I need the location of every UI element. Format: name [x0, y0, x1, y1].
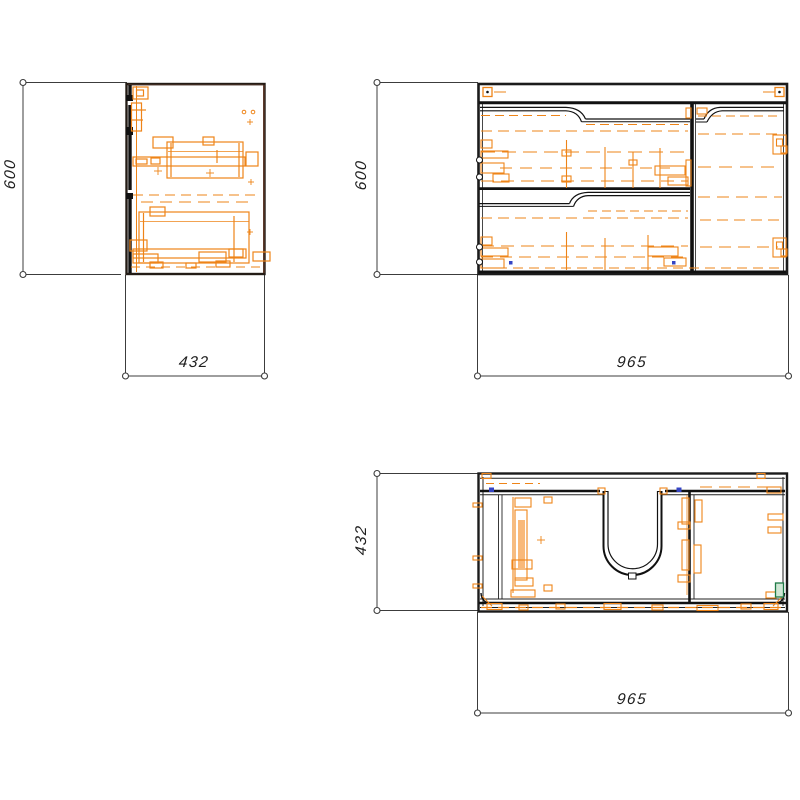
top-green-fitting: [776, 583, 784, 597]
front-view: [477, 84, 788, 274]
side-view: [126, 84, 270, 274]
dim-top-depth: 432: [353, 524, 371, 556]
cad-drawing: [0, 0, 800, 800]
dim-top-width: 965: [616, 691, 648, 709]
drawing-canvas: 600 432 600 965 432 965: [0, 0, 800, 800]
dim-front-width: 965: [616, 354, 648, 372]
sink-cutout: [604, 491, 662, 579]
dim-side-height: 600: [2, 158, 20, 190]
top-view: [473, 474, 787, 612]
dim-front-height: 600: [353, 159, 371, 191]
dim-side-depth: 432: [178, 354, 210, 372]
